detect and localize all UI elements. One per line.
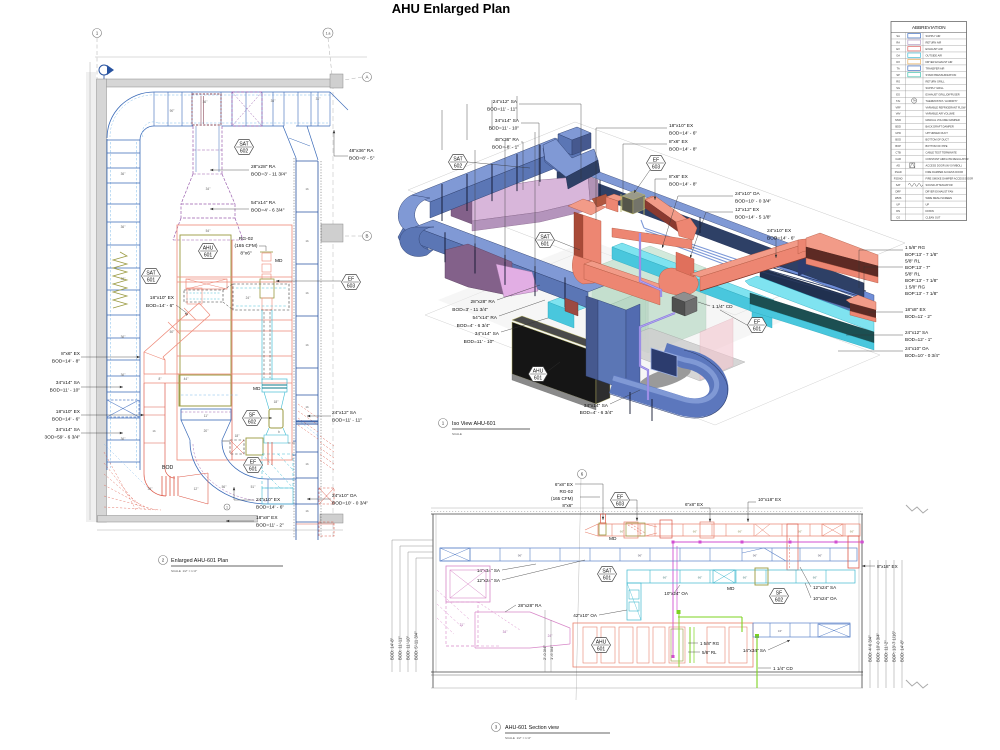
svg-text:12"x12" EX: 12"x12" EX [735, 207, 760, 213]
svg-text:601: 601 [541, 242, 550, 248]
svg-text:BOD=-8' - 1": BOD=-8' - 1" [492, 145, 519, 151]
svg-text:3OD=59' - 6 3/4": 3OD=59' - 6 3/4" [44, 435, 80, 441]
svg-text:MD: MD [253, 386, 261, 392]
svg-text:603: 603 [616, 502, 625, 508]
svg-text:BOD=10' - 0 3/4": BOD=10' - 0 3/4" [735, 199, 771, 205]
svg-text:AHU: AHU [533, 369, 544, 375]
svg-text:BOP: 13'-7 1/16": BOP: 13'-7 1/16" [892, 630, 897, 662]
svg-text:BOD: BOD [895, 138, 901, 142]
svg-text:44": 44" [184, 377, 189, 381]
svg-text:SA: SA [896, 34, 900, 38]
svg-text:RG: RG [896, 79, 900, 83]
svg-text:96": 96" [818, 554, 822, 558]
svg-text:BOD: 10'-0 3/4": BOD: 10'-0 3/4" [876, 632, 881, 662]
svg-text:34"x14" SA: 34"x14" SA [584, 403, 609, 409]
svg-text:56": 56" [222, 485, 227, 489]
svg-text:18": 18" [235, 434, 240, 438]
svg-text:RG-02: RG-02 [559, 489, 573, 494]
svg-text:BOD: 11'-2": BOD: 11'-2" [884, 640, 889, 662]
svg-text:EF: EF [348, 277, 354, 283]
svg-text:DN: DN [896, 209, 900, 213]
svg-text:BOD: 14'-8": BOD: 14'-8" [390, 637, 395, 660]
svg-text:36": 36" [121, 225, 126, 229]
svg-text:SUPPLY AIR: SUPPLY AIR [926, 34, 941, 38]
svg-text:1: 1 [226, 506, 228, 510]
svg-text:CLEAN OUT: CLEAN OUT [926, 215, 941, 219]
svg-text:96": 96" [518, 554, 522, 558]
svg-text:ABBREVIATION: ABBREVIATION [912, 25, 946, 30]
svg-text:5/8" RL: 5/8" RL [905, 259, 921, 264]
svg-text:8"x18" EX: 8"x18" EX [877, 564, 898, 569]
svg-text:SP: SP [896, 73, 900, 77]
svg-text:66": 66" [798, 530, 802, 534]
svg-text:BOP:13' - 7 1/8": BOP:13' - 7 1/8" [905, 278, 938, 283]
svg-text:24"x10" OA: 24"x10" OA [905, 346, 930, 351]
svg-text:UPTURNED DUCT: UPTURNED DUCT [926, 131, 949, 135]
svg-text:BOD=11' - 2": BOD=11' - 2" [905, 314, 932, 319]
svg-text:BOD=14' - 6": BOD=14' - 6" [767, 236, 795, 242]
svg-text:BOD=4' - 6 3/4": BOD=4' - 6 3/4" [457, 323, 491, 329]
svg-text:RA: RA [896, 40, 900, 44]
svg-text:1b: 1b [305, 509, 309, 513]
svg-text:20": 20" [204, 429, 209, 433]
svg-text:TH: TH [913, 100, 916, 103]
svg-text:28"x28" RA: 28"x28" RA [251, 164, 276, 170]
svg-text:66": 66" [663, 576, 667, 580]
svg-text:VAV: VAV [896, 112, 901, 116]
svg-text:24"x10" EX: 24"x10" EX [767, 228, 792, 234]
svg-text:Enlarged AHU-601 Plan: Enlarged AHU-601 Plan [171, 558, 228, 564]
svg-text:36": 36" [203, 100, 208, 104]
svg-text:34": 34" [778, 629, 782, 633]
svg-text:TRANSFER AIR: TRANSFER AIR [926, 66, 945, 70]
svg-text:24"x12" SA: 24"x12" SA [332, 410, 357, 416]
svg-text:SF: SF [249, 413, 255, 419]
svg-text:602: 602 [775, 598, 784, 604]
svg-text:BOD: 14'-8": BOD: 14'-8" [900, 639, 905, 662]
svg-text:AHU-601 Section view: AHU-601 Section view [505, 725, 559, 731]
svg-text:CAR: CAR [895, 157, 901, 161]
svg-text:90°: 90° [170, 109, 176, 113]
svg-text:RETURN AIR: RETURN AIR [926, 40, 942, 44]
svg-text:18": 18" [274, 400, 279, 404]
svg-text:SCALE 1/2" = 1'-0": SCALE 1/2" = 1'-0" [171, 569, 197, 573]
svg-text:FIRE DAMPER ACCESS DOOR: FIRE DAMPER ACCESS DOOR [926, 170, 964, 174]
svg-text:CONSTANT AIRFLOW REGULATOR: CONSTANT AIRFLOW REGULATOR [926, 157, 969, 161]
svg-text:48"x36" RA: 48"x36" RA [349, 148, 374, 154]
svg-text:1 5/8" RG: 1 5/8" RG [905, 245, 925, 250]
svg-text:8"x6" EX: 8"x6" EX [669, 139, 689, 145]
svg-text:SUPPLY GRILL: SUPPLY GRILL [926, 86, 945, 90]
svg-text:DOWN: DOWN [926, 209, 934, 213]
svg-text:RG-02: RG-02 [239, 236, 253, 242]
svg-text:EXHAUST GRILL/DIFFUSER: EXHAUST GRILL/DIFFUSER [926, 92, 960, 96]
svg-text:EG: EG [896, 92, 900, 96]
svg-text:601: 601 [249, 467, 258, 473]
svg-text:EX: EX [896, 47, 900, 51]
svg-text:1 1/4" CD: 1 1/4" CD [773, 666, 793, 671]
svg-text:BOP:13' - 7 1/8": BOP:13' - 7 1/8" [905, 252, 938, 257]
svg-text:DRYER EXHAUST FAN: DRYER EXHAUST FAN [926, 190, 954, 194]
svg-text:BOD: 11'-11": BOD: 11'-11" [398, 636, 403, 660]
svg-text:BOD=3' - 11 3/4": BOD=3' - 11 3/4" [251, 172, 287, 178]
svg-text:1 5/8" RG: 1 5/8" RG [700, 641, 720, 646]
svg-text:36": 36" [121, 373, 126, 377]
svg-text:BOD=11' - 10": BOD=11' - 10" [464, 339, 495, 345]
svg-text:8"x6" EX: 8"x6" EX [61, 351, 81, 357]
svg-text:601: 601 [597, 647, 606, 653]
svg-text:SG: SG [896, 86, 900, 90]
svg-text:BOD: 11'-10": BOD: 11'-10" [406, 635, 411, 660]
svg-text:SAT: SAT [146, 271, 155, 277]
svg-text:602: 602 [454, 164, 463, 170]
svg-text:BOP:13' - 7": BOP:13' - 7" [905, 265, 931, 270]
svg-text:THERMOSTAT / HUMIDITY: THERMOSTAT / HUMIDITY [926, 99, 958, 103]
svg-text:34"x14" SA: 34"x14" SA [475, 331, 500, 337]
svg-text:BOD=11' - 10": BOD=11' - 10" [50, 388, 81, 394]
svg-text:14"x34" SA: 14"x34" SA [743, 648, 767, 653]
svg-text:VRF: VRF [896, 105, 902, 109]
svg-text:6"x8" EX: 6"x8" EX [555, 482, 573, 487]
svg-text:6"x8" EX: 6"x8" EX [685, 502, 703, 507]
svg-text:1 5/8" RG: 1 5/8" RG [905, 285, 925, 290]
svg-text:BOD=11' - 10": BOD=11' - 10" [489, 126, 520, 132]
svg-text:603: 603 [652, 165, 661, 171]
svg-text:8"x6" EX: 8"x6" EX [669, 174, 689, 180]
svg-text:UP: UP [926, 202, 930, 206]
svg-text:BOTTOM OF PIPE: BOTTOM OF PIPE [926, 144, 948, 148]
svg-text:(165 CFM): (165 CFM) [551, 496, 573, 501]
svg-text:SAT: SAT [602, 569, 611, 575]
svg-text:1b: 1b [305, 462, 309, 466]
svg-text:VARIABLE AIR VOLUME: VARIABLE AIR VOLUME [926, 112, 955, 116]
svg-text:1b: 1b [305, 405, 309, 409]
svg-text:66": 66" [813, 576, 817, 580]
svg-text:BOD: 4'-6 3/4": BOD: 4'-6 3/4" [868, 635, 873, 662]
svg-text:12"x24" SA: 12"x24" SA [477, 578, 501, 583]
svg-text:AHU: AHU [596, 640, 607, 646]
svg-text:BOD=10' - 0 3/4": BOD=10' - 0 3/4" [332, 501, 368, 507]
svg-text:BOP: BOP [895, 144, 901, 148]
svg-text:CTB: CTB [896, 151, 901, 155]
svg-text:8"x6": 8"x6" [240, 250, 251, 256]
svg-text:18"x10" EX: 18"x10" EX [150, 295, 175, 301]
svg-text:SAT: SAT [239, 142, 248, 148]
svg-text:EXHAUST AIR: EXHAUST AIR [926, 47, 943, 51]
svg-text:MVD: MVD [895, 118, 901, 122]
svg-text:18"x10" EX: 18"x10" EX [56, 409, 81, 415]
svg-text:10"x24" OA: 10"x24" OA [664, 591, 689, 596]
svg-text:BOD=14' - 8": BOD=14' - 8" [52, 359, 80, 365]
svg-text:50°: 50° [170, 330, 176, 334]
svg-text:24"x12" SA: 24"x12" SA [493, 99, 518, 105]
svg-text:MD: MD [609, 536, 617, 542]
svg-text:DX: DX [896, 60, 900, 64]
svg-text:24": 24" [246, 296, 251, 300]
svg-text:BOD=11' - 11": BOD=11' - 11" [332, 418, 362, 424]
svg-text:UP: UP [896, 202, 900, 206]
svg-text:96": 96" [638, 554, 642, 558]
svg-text:601: 601 [204, 253, 213, 259]
svg-text:602: 602 [248, 420, 257, 426]
svg-text:SAT: SAT [540, 235, 549, 241]
svg-text:66": 66" [698, 576, 702, 580]
svg-text:1b: 1b [305, 187, 309, 191]
svg-text:SOUND ATTENUATOR: SOUND ATTENUATOR [926, 183, 953, 187]
svg-text:Iso View AHU-601: Iso View AHU-601 [452, 421, 496, 427]
svg-text:BOD=14' - 6": BOD=14' - 6" [146, 303, 174, 309]
svg-text:MD: MD [727, 586, 735, 592]
svg-text:34": 34" [206, 187, 211, 191]
svg-text:42"x10" OA: 42"x10" OA [573, 613, 598, 618]
svg-text:BOD=4' - 6 3/4": BOD=4' - 6 3/4" [251, 208, 285, 214]
svg-text:B: B [365, 234, 368, 239]
svg-text:10"x18" EX: 10"x18" EX [758, 497, 781, 502]
svg-text:2'-0 3/4": 2'-0 3/4" [542, 645, 547, 660]
svg-text:34"x14" SA: 34"x14" SA [495, 118, 520, 124]
svg-text:66": 66" [738, 530, 742, 534]
svg-text:BOD=11' - 11": BOD=11' - 11" [487, 107, 517, 113]
svg-text:24": 24" [548, 634, 553, 638]
svg-text:SCALE 1/2" = 1'-0": SCALE 1/2" = 1'-0" [505, 736, 531, 740]
svg-text:1b: 1b [305, 291, 309, 295]
svg-text:CABLE TEST TERMINATE: CABLE TEST TERMINATE [926, 151, 957, 155]
svg-text:BOD=10' - 0 3/4": BOD=10' - 0 3/4" [905, 353, 940, 358]
svg-text:VARIABLE REFRIGERANT FLOW: VARIABLE REFRIGERANT FLOW [926, 105, 967, 109]
svg-text:66": 66" [620, 530, 624, 534]
svg-text:RETURN GRILL: RETURN GRILL [926, 79, 946, 83]
svg-text:1.a: 1.a [326, 32, 331, 36]
svg-text:24"x10" EX: 24"x10" EX [256, 497, 281, 503]
svg-text:AD: AD [896, 164, 900, 168]
svg-text:8": 8" [159, 377, 162, 381]
svg-text:(165 CFM): (165 CFM) [235, 243, 258, 249]
svg-text:TA: TA [897, 66, 900, 70]
svg-text:11": 11" [204, 414, 208, 418]
svg-text:CO: CO [896, 215, 900, 219]
svg-text:12": 12" [194, 487, 199, 491]
svg-text:1b: 1b [305, 343, 309, 347]
svg-text:EF: EF [754, 320, 760, 326]
svg-text:96": 96" [753, 554, 757, 558]
svg-text:FSAD: FSAD [895, 170, 902, 174]
svg-text:18"x8" EX: 18"x8" EX [905, 307, 926, 312]
svg-text:A: A [365, 75, 368, 80]
svg-text:OA: OA [896, 53, 900, 57]
svg-text:BOD=4' - 6 3/4": BOD=4' - 6 3/4" [580, 410, 614, 416]
svg-text:18"x8" EX: 18"x8" EX [256, 515, 278, 521]
svg-text:12"x24" SA: 12"x24" SA [813, 585, 837, 590]
svg-text:36": 36" [121, 437, 126, 441]
svg-text:BDD: BDD [895, 125, 901, 129]
svg-text:SAT: SAT [453, 157, 462, 163]
svg-text:1 1/4" CD: 1 1/4" CD [712, 304, 733, 310]
svg-text:8"x6": 8"x6" [562, 503, 573, 508]
svg-text:28"x28" RA: 28"x28" RA [471, 299, 496, 305]
svg-text:BOTTOM OF DUCT: BOTTOM OF DUCT [926, 138, 950, 142]
svg-text:EF: EF [617, 495, 623, 501]
svg-text:BOP:13' - 7 1/8": BOP:13' - 7 1/8" [905, 291, 938, 296]
svg-text:OUTSIDE AIR: OUTSIDE AIR [926, 53, 943, 57]
svg-text:AHU: AHU [203, 246, 214, 252]
svg-text:1b: 1b [152, 429, 156, 433]
svg-text:MANUAL VOLUME DAMPER: MANUAL VOLUME DAMPER [926, 118, 960, 122]
svg-text:66": 66" [743, 576, 747, 580]
svg-text:31": 31" [316, 97, 321, 101]
svg-text:EF: EF [653, 158, 659, 164]
svg-text:34"x14" SA: 34"x14" SA [56, 380, 81, 386]
svg-text:601: 601 [534, 376, 543, 382]
svg-text:SAT: SAT [896, 183, 901, 187]
svg-text:18"x10" EX: 18"x10" EX [669, 123, 694, 129]
svg-text:36": 36" [121, 335, 126, 339]
svg-text:36": 36" [148, 487, 153, 491]
svg-text:BOD=14' - 8": BOD=14' - 8" [669, 147, 697, 153]
svg-text:WMS: WMS [895, 196, 902, 200]
svg-text:ACCESS DOOR (W/ SYMBOL): ACCESS DOOR (W/ SYMBOL) [926, 164, 962, 168]
svg-text:601: 601 [147, 278, 156, 284]
svg-text:10"x24" OA: 10"x24" OA [813, 596, 838, 601]
svg-text:BOD: BOD [162, 465, 173, 471]
svg-text:DRF: DRF [895, 190, 901, 194]
svg-text:66": 66" [850, 530, 854, 534]
svg-text:EF: EF [250, 460, 256, 466]
svg-text:WIRE MESH SCREEN: WIRE MESH SCREEN [926, 196, 953, 200]
svg-text:MD: MD [275, 258, 283, 264]
svg-text:51": 51" [251, 485, 256, 489]
svg-text:66": 66" [693, 530, 697, 534]
svg-text:BOD=14' - 6": BOD=14' - 6" [52, 417, 80, 423]
svg-text:b: b [278, 430, 280, 434]
svg-text:36": 36" [271, 99, 276, 103]
svg-text:34": 34" [503, 630, 508, 634]
svg-text:BOD=14' - 8": BOD=14' - 8" [669, 182, 697, 188]
svg-text:SCALE: SCALE [452, 432, 462, 436]
svg-text:T/H: T/H [896, 99, 900, 103]
svg-text:DRYER EXHAUST AIR: DRYER EXHAUST AIR [926, 60, 953, 64]
svg-text:54": 54" [206, 229, 211, 233]
svg-text:601: 601 [753, 327, 762, 333]
svg-text:24"x12" SA: 24"x12" SA [905, 330, 929, 335]
svg-text:SF: SF [776, 591, 782, 597]
svg-text:603: 603 [347, 284, 356, 290]
svg-text:AHU Enlarged Plan: AHU Enlarged Plan [392, 1, 511, 16]
svg-text:FSDAD: FSDAD [894, 177, 903, 181]
svg-text:BACK DRAFT DAMPER: BACK DRAFT DAMPER [926, 125, 954, 129]
svg-text:BOD=14' - 5 1/8": BOD=14' - 5 1/8" [735, 215, 771, 221]
svg-text:5/8" RL: 5/8" RL [702, 650, 717, 655]
svg-text:48"x36" RA: 48"x36" RA [495, 137, 520, 143]
svg-text:54"x14" RA: 54"x14" RA [251, 200, 276, 206]
svg-text:14"x34" SA: 14"x34" SA [477, 568, 501, 573]
svg-text:BOD=11' - 2": BOD=11' - 2" [256, 523, 284, 529]
svg-text:5/8" RL: 5/8" RL [905, 272, 921, 277]
svg-text:24"x10" OA: 24"x10" OA [332, 493, 358, 499]
svg-text:36": 36" [121, 172, 126, 176]
svg-text:FIRE SMOKE DAMPER ACCESS DOOR: FIRE SMOKE DAMPER ACCESS DOOR [926, 177, 974, 181]
svg-text:31": 31" [460, 623, 465, 627]
svg-text:BOD=8' - 5": BOD=8' - 5" [349, 156, 375, 162]
svg-text:UPD: UPD [895, 131, 901, 135]
svg-text:BOD=14' - 6": BOD=14' - 6" [256, 505, 284, 511]
svg-text:STAIR PRESSURIZATION: STAIR PRESSURIZATION [926, 73, 957, 77]
svg-text:1b: 1b [305, 239, 309, 243]
svg-text:1'-6 3/4": 1'-6 3/4" [549, 645, 554, 660]
svg-text:602: 602 [240, 149, 249, 155]
svg-text:601: 601 [603, 576, 612, 582]
svg-text:BOD=12' - 1": BOD=12' - 1" [905, 337, 932, 342]
svg-text:34"x14" SA: 34"x14" SA [56, 427, 81, 433]
svg-text:BOD: 5'-11 3/4": BOD: 5'-11 3/4" [414, 631, 419, 660]
svg-text:54"x14" RA: 54"x14" RA [473, 315, 498, 321]
svg-text:24"x10" OA: 24"x10" OA [735, 191, 761, 197]
svg-text:BOD=3' - 11 3/4": BOD=3' - 11 3/4" [452, 307, 488, 313]
svg-text:BOD=14' - 6": BOD=14' - 6" [669, 131, 697, 137]
svg-text:28"x28" RA: 28"x28" RA [518, 603, 542, 608]
